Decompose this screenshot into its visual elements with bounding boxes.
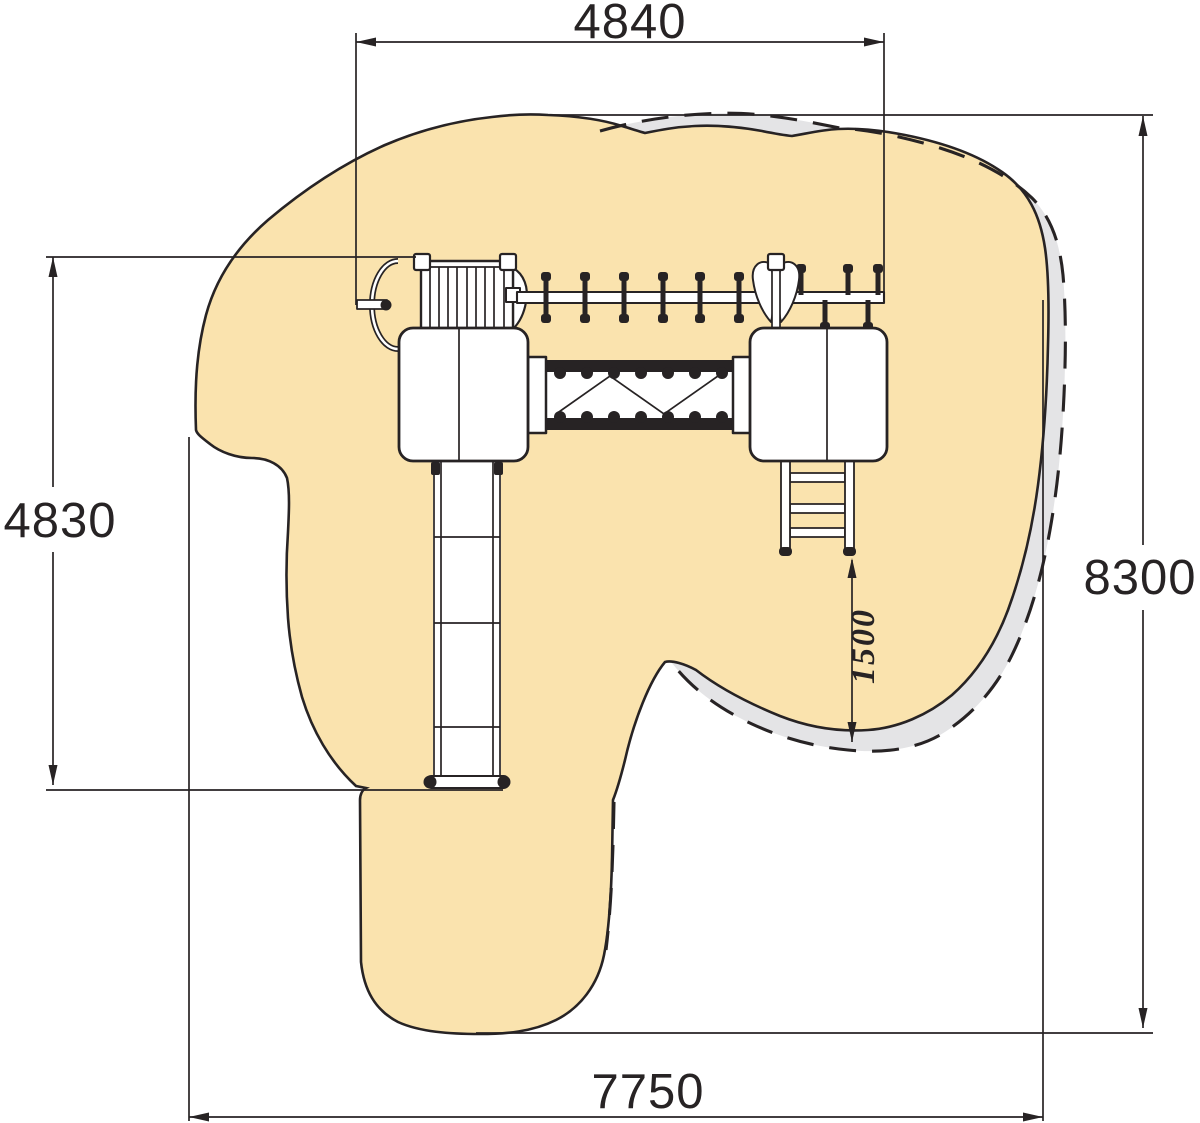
climbing-ramp bbox=[414, 254, 527, 330]
dimension-right-label: 8300 bbox=[1083, 551, 1196, 605]
slide-mount-tab bbox=[431, 462, 440, 475]
handle-anchor bbox=[381, 300, 392, 311]
arrowhead-right bbox=[864, 38, 884, 47]
slide bbox=[424, 462, 511, 789]
bridge-connector-left bbox=[528, 357, 546, 433]
slide-mount-tab bbox=[494, 462, 503, 475]
platform-left bbox=[399, 328, 528, 461]
dimension-top-label: 4840 bbox=[573, 0, 686, 49]
arrowhead-left bbox=[356, 38, 376, 47]
suspension-bridge bbox=[528, 357, 751, 433]
slide-end-foot bbox=[498, 776, 511, 789]
arrowhead-bottom bbox=[1139, 1008, 1148, 1028]
arrowhead-top bbox=[1139, 116, 1148, 136]
ladder-rail-left bbox=[781, 461, 790, 554]
arrowhead-bottom bbox=[49, 765, 58, 785]
plan-drawing-page: 4840 4830 8300 7750 1500 bbox=[0, 0, 1200, 1123]
ladder-rung bbox=[790, 473, 845, 482]
ladder-foot bbox=[779, 547, 792, 556]
dimension-bottom-label: 7750 bbox=[591, 1065, 704, 1119]
platform-right bbox=[750, 328, 887, 461]
bridge-connector-right bbox=[733, 357, 751, 433]
arrowhead-right bbox=[1023, 1113, 1043, 1122]
arrowhead-left bbox=[189, 1113, 209, 1122]
ramp-post-right bbox=[500, 254, 516, 270]
ladder-rung bbox=[790, 528, 845, 537]
ladder-rung bbox=[790, 504, 845, 513]
ladder-rail-right bbox=[845, 461, 854, 554]
playground-plan-svg: 4840 4830 8300 7750 1500 bbox=[0, 0, 1200, 1123]
ramp-post-left bbox=[414, 254, 430, 270]
slide-end-foot bbox=[424, 776, 437, 789]
pole-cap bbox=[768, 254, 784, 270]
dimension-left-label: 4830 bbox=[3, 494, 116, 548]
dimension-inner-label: 1500 bbox=[845, 608, 882, 684]
slide-end-bar bbox=[427, 776, 508, 788]
sand-area bbox=[195, 114, 1048, 1034]
ladder-foot bbox=[843, 547, 856, 556]
pole-shaft bbox=[772, 266, 780, 329]
arrowhead-top bbox=[49, 257, 58, 277]
